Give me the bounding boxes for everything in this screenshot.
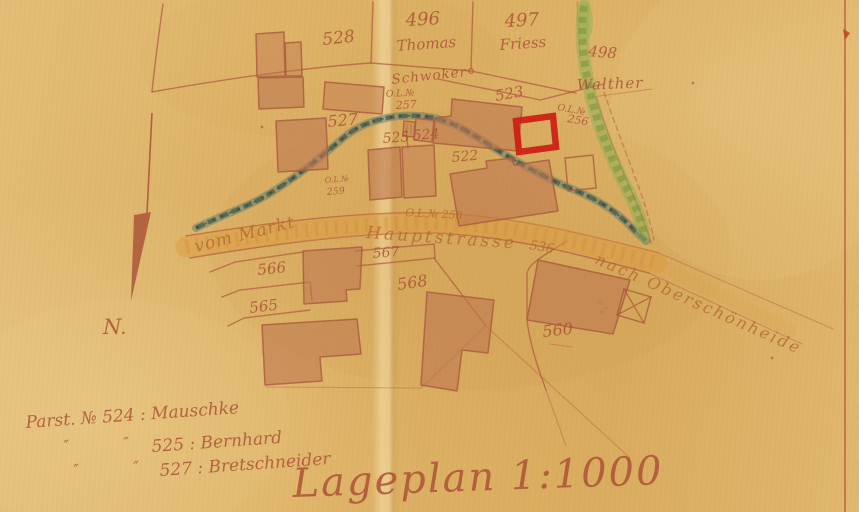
map-canvas: N. 496 Thomas 497 Friess 498 Walther 528… [0,0,859,512]
scanned-map: N. 496 Thomas 497 Friess 498 Walther 528… [0,0,859,512]
paper-grain [0,0,859,512]
